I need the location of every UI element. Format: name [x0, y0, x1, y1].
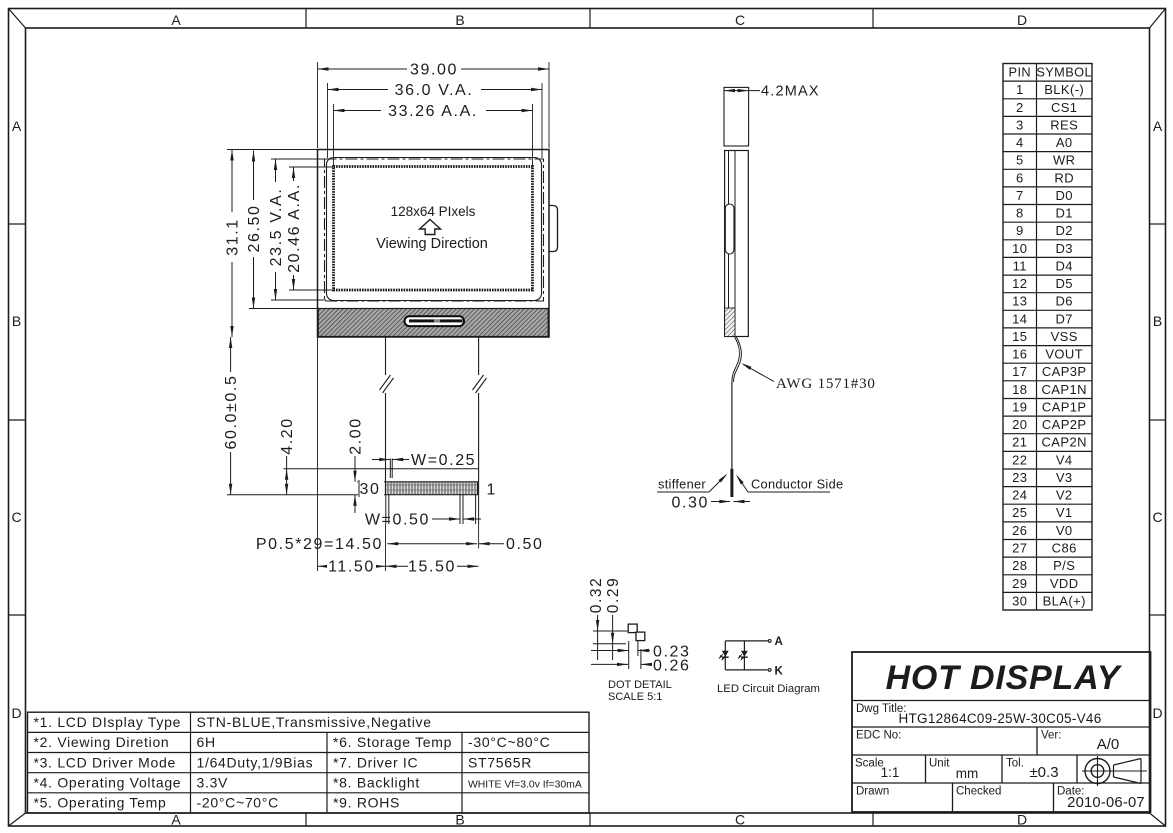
svg-text:V2: V2	[1056, 488, 1073, 503]
svg-text:C: C	[735, 12, 745, 28]
svg-text:V3: V3	[1056, 470, 1073, 485]
svg-text:3: 3	[1016, 117, 1024, 132]
svg-text:0.29: 0.29	[605, 577, 622, 614]
svg-text:Drawn: Drawn	[856, 786, 889, 798]
svg-text:36.0 V.A.: 36.0 V.A.	[395, 82, 474, 99]
svg-text:2: 2	[1016, 100, 1024, 115]
svg-text:D7: D7	[1055, 311, 1072, 326]
svg-text:39.00: 39.00	[410, 62, 458, 79]
svg-text:CAP2P: CAP2P	[1042, 417, 1087, 432]
svg-text:15.50: 15.50	[408, 559, 456, 576]
svg-text:A0: A0	[1056, 135, 1073, 150]
svg-text:4: 4	[1016, 135, 1024, 150]
svg-text:25: 25	[1012, 505, 1027, 520]
svg-text:D4: D4	[1055, 258, 1072, 273]
svg-text:8: 8	[1016, 206, 1024, 221]
svg-text:D6: D6	[1055, 294, 1072, 309]
svg-text:D: D	[1152, 705, 1162, 721]
svg-text:2.00: 2.00	[348, 417, 365, 455]
svg-text:RD: RD	[1054, 170, 1074, 185]
svg-text:5: 5	[1016, 153, 1024, 168]
svg-text:B: B	[1153, 313, 1162, 329]
svg-text:A/0: A/0	[1097, 736, 1120, 753]
svg-text:30: 30	[360, 481, 381, 498]
svg-text:±0.3: ±0.3	[1029, 764, 1058, 781]
svg-text:B: B	[455, 812, 464, 828]
svg-text:V1: V1	[1056, 505, 1073, 520]
svg-text:33.26 A.A.: 33.26 A.A.	[388, 103, 478, 120]
svg-text:D: D	[1017, 812, 1027, 828]
svg-text:13: 13	[1012, 294, 1027, 309]
svg-text:9: 9	[1016, 223, 1024, 238]
svg-text:CAP1P: CAP1P	[1042, 400, 1087, 415]
svg-text:22: 22	[1012, 452, 1027, 467]
svg-text:V0: V0	[1056, 523, 1073, 538]
svg-text:128x64 PIxels: 128x64 PIxels	[391, 204, 476, 219]
svg-text:D0: D0	[1055, 188, 1072, 203]
svg-text:6H: 6H	[197, 734, 216, 750]
svg-text:A: A	[12, 118, 22, 134]
svg-text:11: 11	[1013, 258, 1027, 273]
svg-text:HOT DISPLAY: HOT DISPLAY	[886, 659, 1123, 697]
svg-text:0.30: 0.30	[671, 495, 709, 512]
svg-text:P0.5*29=14.50: P0.5*29=14.50	[256, 536, 383, 553]
svg-text:CAP1N: CAP1N	[1042, 382, 1087, 397]
svg-text:LED Circuit Diagram: LED Circuit Diagram	[717, 683, 820, 695]
svg-text:26: 26	[1012, 523, 1027, 538]
svg-text:PIN: PIN	[1009, 65, 1032, 80]
svg-text:1: 1	[1016, 82, 1024, 97]
svg-text:SYMBOL: SYMBOL	[1036, 65, 1092, 80]
svg-text:VOUT: VOUT	[1045, 347, 1083, 362]
svg-text:17: 17	[1012, 364, 1027, 379]
svg-text:14: 14	[1012, 311, 1027, 326]
svg-text:P/S: P/S	[1053, 558, 1075, 573]
svg-text:24: 24	[1012, 488, 1027, 503]
svg-text:D: D	[1017, 12, 1027, 28]
svg-text:C86: C86	[1052, 541, 1077, 556]
svg-text:*3. LCD Driver Mode: *3. LCD Driver Mode	[34, 754, 176, 770]
svg-text:BLK(-): BLK(-)	[1044, 82, 1084, 97]
svg-text:Scale: Scale	[855, 758, 884, 770]
svg-text:D: D	[11, 705, 21, 721]
svg-text:19: 19	[1012, 400, 1027, 415]
svg-text:16: 16	[1012, 347, 1027, 362]
svg-text:*8. Backlight: *8. Backlight	[333, 775, 420, 791]
svg-text:-20°C~70°C: -20°C~70°C	[197, 795, 279, 811]
svg-text:C: C	[1152, 509, 1162, 525]
svg-text:K: K	[775, 666, 784, 678]
svg-text:0.50: 0.50	[506, 536, 544, 553]
svg-text:AWG 1571#30: AWG 1571#30	[776, 376, 876, 392]
svg-text:12: 12	[1012, 276, 1027, 291]
svg-text:stiffener: stiffener	[658, 477, 706, 492]
svg-text:11.50: 11.50	[328, 559, 375, 576]
svg-text:D3: D3	[1055, 241, 1072, 256]
svg-text:WR: WR	[1053, 153, 1075, 168]
svg-text:W=0.25: W=0.25	[411, 452, 476, 469]
svg-text:*9. ROHS: *9. ROHS	[333, 795, 400, 811]
svg-text:V4: V4	[1056, 452, 1073, 467]
svg-text:28: 28	[1012, 558, 1027, 573]
svg-text:SCALE 5:1: SCALE 5:1	[608, 691, 662, 703]
svg-text:4.2MAX: 4.2MAX	[761, 84, 820, 100]
svg-text:ST7565R: ST7565R	[468, 754, 532, 770]
svg-text:*7. Driver IC: *7. Driver IC	[333, 754, 418, 770]
svg-text:BLA(+): BLA(+)	[1043, 593, 1086, 608]
svg-text:60.0±0.5: 60.0±0.5	[223, 375, 240, 450]
svg-text:mm: mm	[956, 766, 979, 781]
svg-text:30: 30	[1012, 593, 1027, 608]
svg-text:15: 15	[1012, 329, 1027, 344]
svg-text:Tol.: Tol.	[1006, 758, 1024, 770]
svg-text:Viewing Direction: Viewing Direction	[376, 236, 488, 252]
svg-text:1/64Duty,1/9Bias: 1/64Duty,1/9Bias	[197, 754, 314, 770]
svg-text:VDD: VDD	[1050, 576, 1079, 591]
svg-text:7: 7	[1016, 188, 1024, 203]
svg-text:A: A	[1153, 118, 1163, 134]
svg-text:20.46 A.A.: 20.46 A.A.	[286, 183, 303, 273]
svg-text:1: 1	[487, 482, 498, 499]
svg-text:D5: D5	[1055, 276, 1072, 291]
svg-text:C: C	[735, 812, 745, 828]
svg-text:A: A	[171, 812, 181, 828]
svg-text:*6. Storage Temp: *6. Storage Temp	[333, 734, 452, 750]
svg-text:A: A	[775, 636, 783, 648]
svg-text:-30°C~80°C: -30°C~80°C	[468, 734, 550, 750]
svg-text:WHITE Vf=3.0v If=30mA: WHITE Vf=3.0v If=30mA	[468, 780, 582, 791]
svg-text:*1. LCD DIsplay Type: *1. LCD DIsplay Type	[34, 714, 182, 730]
svg-text:VSS: VSS	[1051, 329, 1078, 344]
svg-text:6: 6	[1016, 170, 1024, 185]
svg-text:*5. Operating Temp: *5. Operating Temp	[34, 795, 167, 811]
svg-text:23.5 V.A.: 23.5 V.A.	[268, 188, 285, 267]
svg-text:2010-06-07: 2010-06-07	[1067, 795, 1145, 811]
svg-text:*4. Operating Voltage: *4. Operating Voltage	[34, 775, 182, 791]
svg-text:CAP3P: CAP3P	[1042, 364, 1087, 379]
svg-text:DOT DETAIL: DOT DETAIL	[608, 679, 672, 691]
svg-text:C: C	[11, 509, 21, 525]
svg-text:31.1: 31.1	[225, 218, 242, 256]
svg-text:CAP2N: CAP2N	[1042, 435, 1087, 450]
svg-text:0.32: 0.32	[588, 577, 605, 614]
svg-text:STN-BLUE,Transmissive,Negative: STN-BLUE,Transmissive,Negative	[197, 714, 432, 730]
svg-text:1:1: 1:1	[881, 765, 900, 780]
svg-text:W=0.50: W=0.50	[365, 512, 430, 529]
svg-text:B: B	[12, 313, 21, 329]
svg-text:29: 29	[1012, 576, 1027, 591]
svg-text:18: 18	[1012, 382, 1027, 397]
svg-text:4.20: 4.20	[279, 417, 296, 455]
svg-text:D1: D1	[1055, 206, 1072, 221]
svg-text:Unit: Unit	[929, 758, 950, 770]
svg-text:*2. Viewing Diretion: *2. Viewing Diretion	[34, 734, 170, 750]
svg-text:3.3V: 3.3V	[197, 775, 229, 791]
svg-text:Checked: Checked	[956, 786, 1001, 798]
svg-text:B: B	[455, 12, 464, 28]
svg-text:CS1: CS1	[1051, 100, 1078, 115]
svg-text:10: 10	[1012, 241, 1027, 256]
svg-text:0.26: 0.26	[653, 658, 691, 675]
svg-text:RES: RES	[1050, 117, 1078, 132]
svg-text:A: A	[171, 12, 181, 28]
svg-text:20: 20	[1012, 417, 1027, 432]
svg-text:Conductor Side: Conductor Side	[751, 477, 843, 492]
svg-text:27: 27	[1012, 541, 1027, 556]
svg-text:21: 21	[1012, 435, 1027, 450]
svg-text:23: 23	[1012, 470, 1027, 485]
svg-text:26.50: 26.50	[246, 204, 263, 252]
svg-text:Ver:: Ver:	[1041, 730, 1061, 742]
svg-text:D2: D2	[1055, 223, 1072, 238]
svg-text:EDC No:: EDC No:	[856, 730, 901, 742]
svg-text:HTG12864C09-25W-30C05-V46: HTG12864C09-25W-30C05-V46	[898, 711, 1101, 726]
